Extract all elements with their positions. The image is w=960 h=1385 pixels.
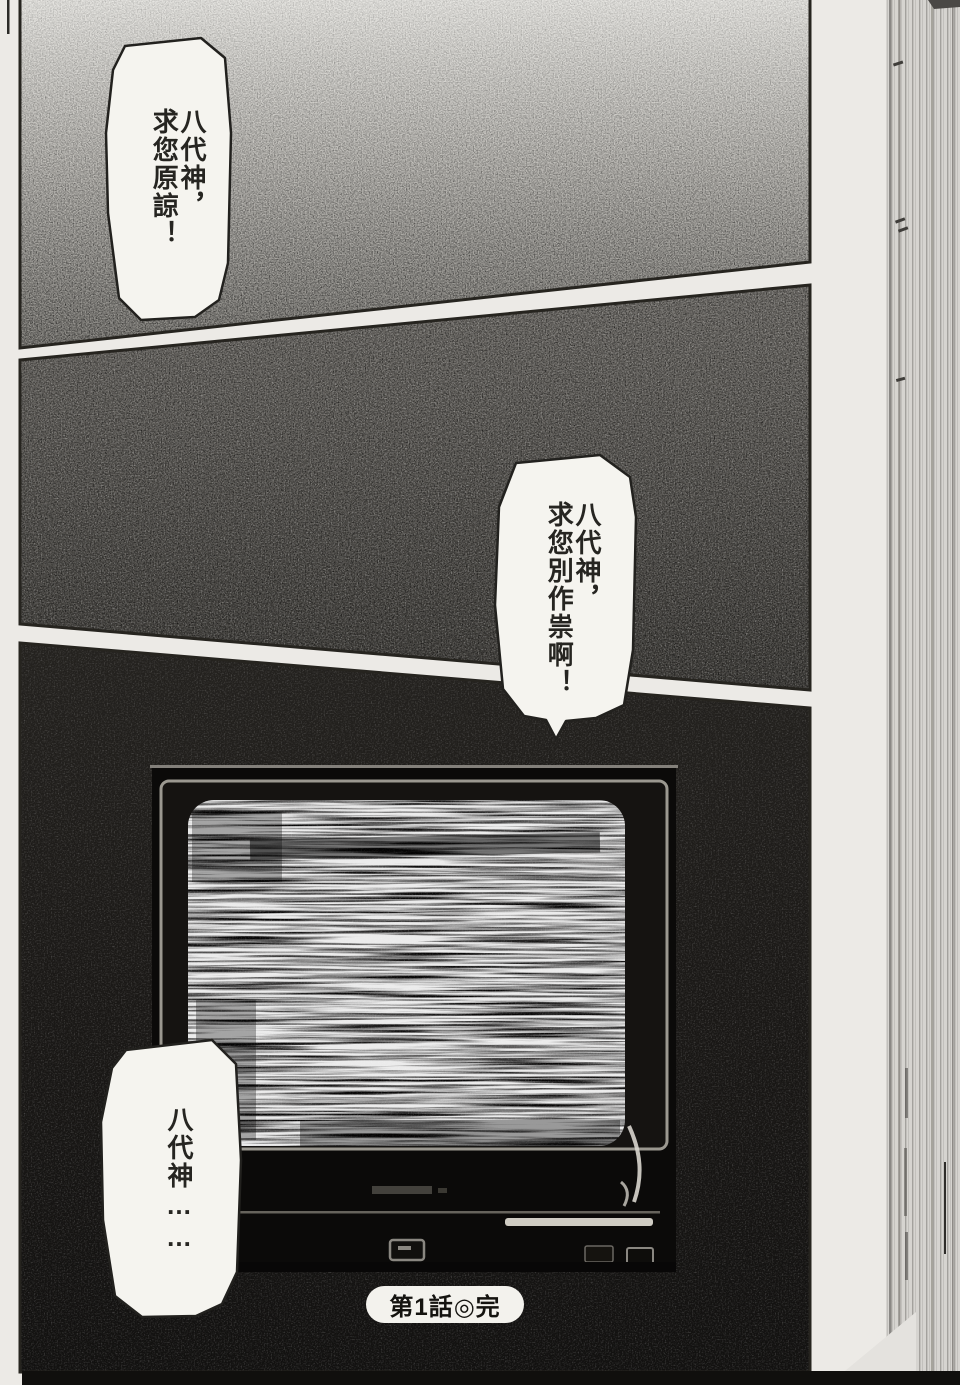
bubble-text-line: 八代神，: [177, 108, 205, 248]
tv-light-streak: [505, 1218, 653, 1226]
tv-control-knob: [585, 1246, 613, 1262]
chapter-end-caption: 第1話◎完: [366, 1286, 524, 1323]
speech-bubble-top-left: 八代神， 求您原諒！: [105, 38, 233, 320]
bubble-text: 八代神， 求您別作祟啊！: [544, 501, 600, 697]
tv-screen-static: [188, 800, 625, 1146]
bubble-text-line: 八代神，: [572, 501, 600, 697]
bubble-text-line: 求您別作祟啊！: [544, 501, 572, 697]
margin-ink-line: [7, 0, 10, 34]
bubble-text-line: 求您原諒！: [149, 108, 177, 248]
bubble-text-line: 八代神……: [164, 1106, 192, 1254]
bubble-text: 八代神……: [164, 1106, 192, 1254]
tv-top-highlight: [150, 765, 678, 768]
tv-brand-label: [372, 1186, 432, 1194]
scan-bottom-band: [22, 1371, 960, 1385]
bubble-text: 八代神， 求您原諒！: [149, 108, 205, 248]
tv-trim-line: [240, 1211, 660, 1214]
speech-bubble-middle-right: 八代神， 求您別作祟啊！: [494, 455, 640, 743]
speech-bubble-bottom-left: 八代神……: [100, 1040, 242, 1318]
